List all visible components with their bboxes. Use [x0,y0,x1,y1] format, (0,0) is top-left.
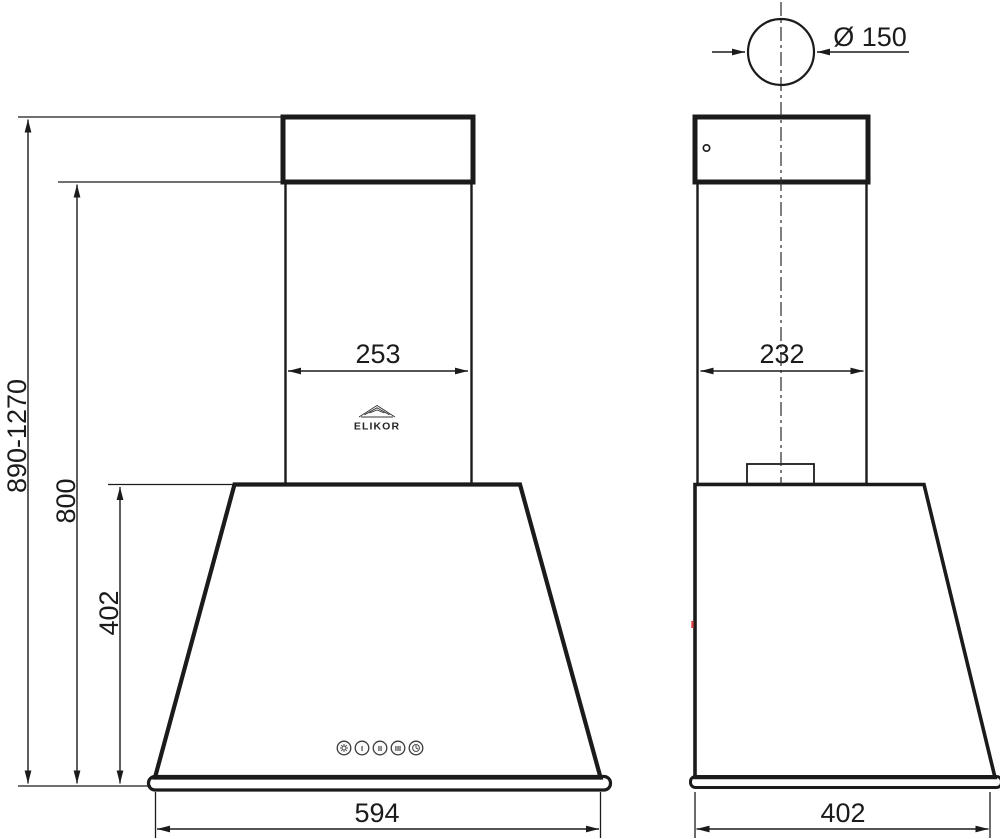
elikor-logo: ELIKOR [354,406,400,433]
front-chimney-lower [286,182,472,484]
page-background: 253 ELIKOR [0,0,1000,839]
red-artifact-mark [691,621,693,628]
dim-front-chimney-width-label: 253 [355,339,400,369]
mounting-hole [703,145,709,151]
elikor-logo-text: ELIKOR [354,421,400,433]
speed3-label: III [395,744,401,753]
front-dimensions: 890-1270 800 402 594 [2,117,601,838]
dim-overall-height-label: 890-1270 [2,379,32,493]
side-chimney-lower [698,182,867,484]
dim-800-label: 800 [51,478,81,523]
dim-duct-diameter-label: Ø 150 [833,22,907,52]
technical-drawing: 253 ELIKOR [0,0,1000,839]
speed1-label: I [361,744,363,753]
control-button-timer [409,741,423,755]
speed2-label: II [378,744,382,753]
control-panel: I II III [337,741,423,755]
side-view: 232 Ø 150 [691,2,1000,788]
dim-body-depth-label: 402 [820,798,865,828]
front-hood-body [155,485,601,778]
control-button-speed2: II [373,741,387,755]
front-chimney-cap [283,117,473,182]
dim-body-width-label: 594 [354,798,399,828]
side-hood-body [695,485,995,778]
dim-body-height-label: 402 [94,590,124,635]
elikor-mountains-icon [359,406,395,418]
dim-side-chimney-depth-label: 232 [759,339,804,369]
control-button-speed1: I [355,741,369,755]
side-dimensions: 402 [695,792,990,838]
control-button-light [337,741,351,755]
front-view: 253 ELIKOR [108,117,611,790]
control-button-speed3: III [391,741,405,755]
